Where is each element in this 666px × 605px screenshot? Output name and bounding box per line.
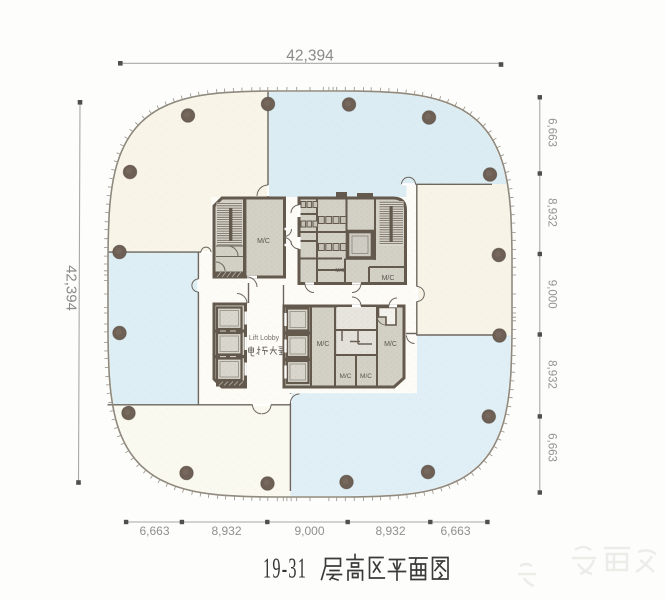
svg-text:8,932: 8,932	[211, 524, 241, 538]
svg-text:8,932: 8,932	[546, 198, 558, 227]
svg-text:19-31: 19-31	[263, 553, 307, 585]
svg-text:8,932: 8,932	[375, 524, 405, 538]
svg-text:6,663: 6,663	[440, 524, 470, 538]
svg-text:9,000: 9,000	[294, 524, 324, 538]
svg-text:Lift Lobby: Lift Lobby	[249, 335, 280, 342]
svg-text:6,663: 6,663	[139, 524, 169, 538]
svg-text:8,932: 8,932	[546, 360, 558, 389]
svg-text:6,663: 6,663	[546, 433, 558, 462]
svg-text:9,000: 9,000	[546, 280, 558, 309]
svg-text:42,394: 42,394	[63, 265, 80, 311]
svg-text:6,663: 6,663	[546, 118, 558, 147]
svg-text:42,394: 42,394	[286, 48, 334, 65]
